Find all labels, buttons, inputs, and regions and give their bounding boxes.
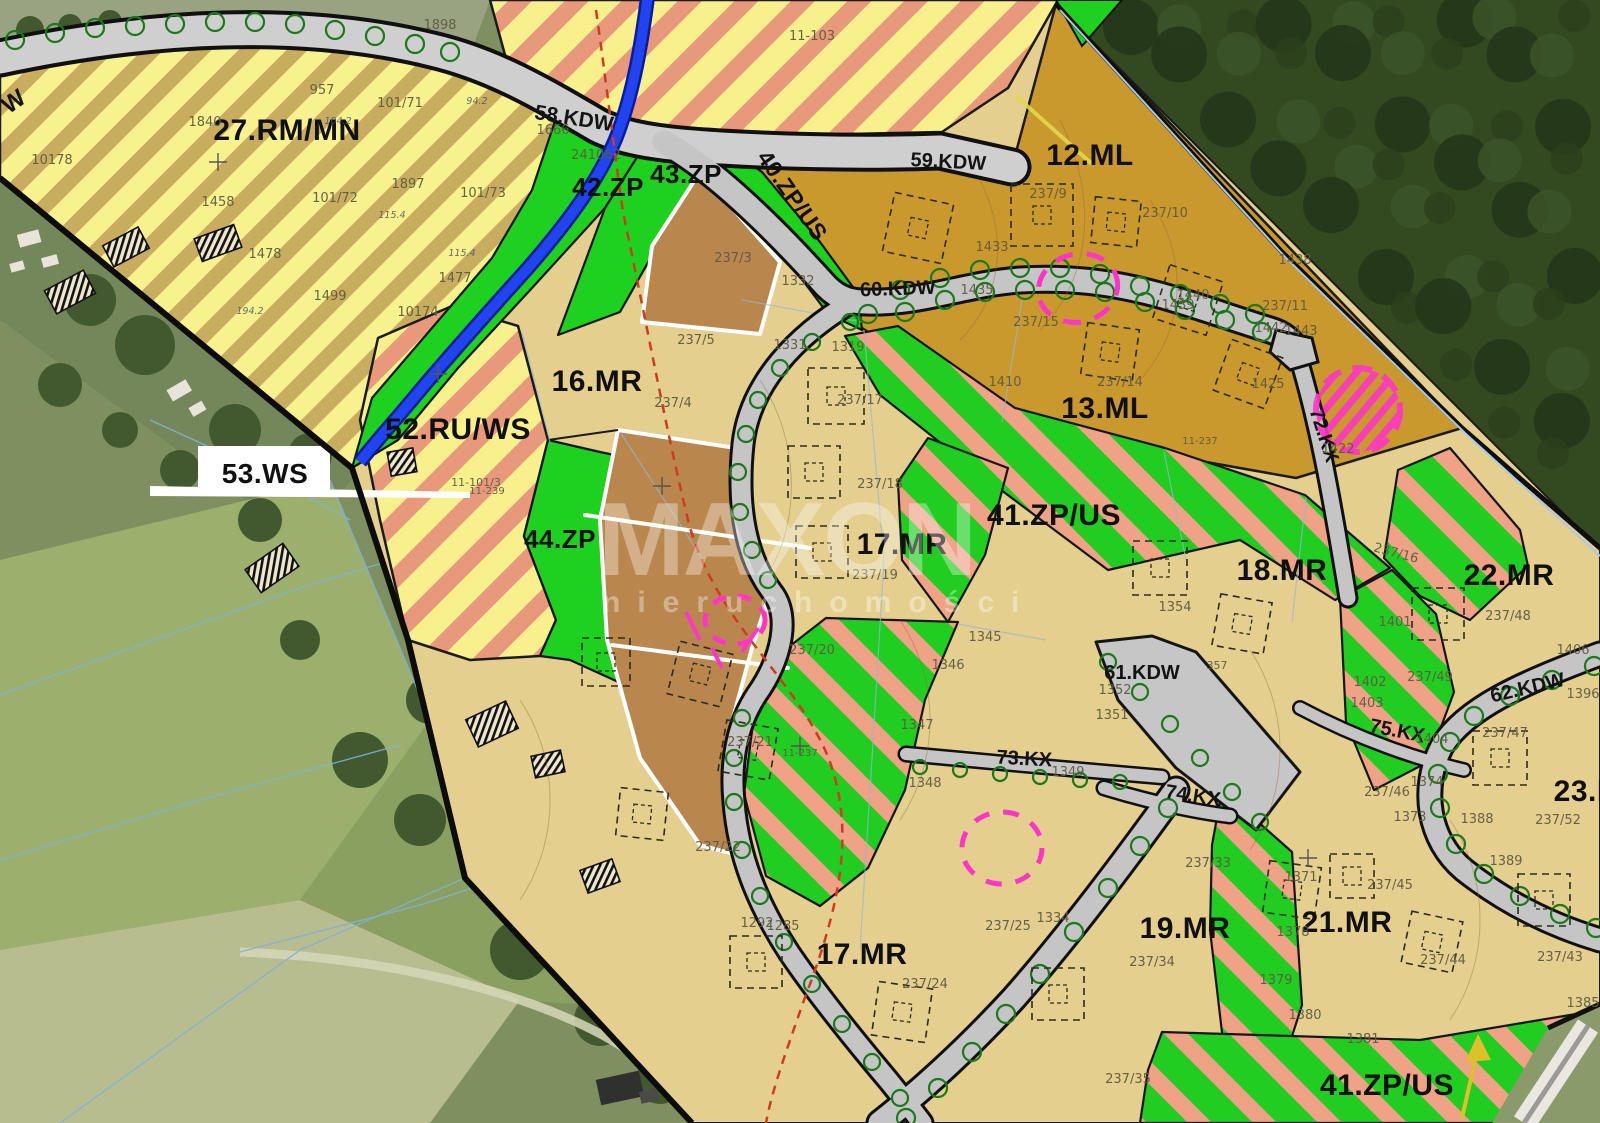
forest-canopy-blob	[1200, 92, 1256, 148]
pl-1346: 1346	[931, 658, 964, 673]
pl-1401: 1401	[1378, 615, 1411, 630]
pl-237-18: 237/18	[857, 477, 903, 492]
pl-10178: 10178	[31, 153, 72, 168]
pl-1378: 1378	[1276, 925, 1309, 940]
forest-canopy-blob	[1530, 34, 1574, 78]
forest-canopy-blob	[1488, 407, 1520, 439]
pl-1402: 1402	[1353, 675, 1386, 690]
road-59-kdw: 59.KDW	[910, 149, 987, 175]
pl-237-43: 237/43	[1537, 950, 1583, 965]
pl-1285: 1285	[766, 919, 799, 934]
pl-1374: 1374	[1410, 775, 1443, 790]
pl-1897: 1897	[391, 177, 424, 192]
pl-101-72: 101/72	[312, 191, 358, 206]
pl-1840: 1840	[188, 115, 221, 130]
pl-237-3: 237/3	[714, 251, 751, 266]
pl-237-44: 237/44	[1420, 953, 1466, 968]
forest-canopy-blob	[1477, 261, 1509, 293]
zone-13-ml: 13.ML	[1061, 392, 1149, 425]
pl-1396: 1396	[1566, 687, 1599, 702]
pl-1666: 1666	[536, 123, 569, 138]
pl-237-9: 237/9	[1029, 187, 1066, 202]
pl-1425: 1425	[1251, 377, 1284, 392]
pl-1499: 1499	[313, 289, 346, 304]
pl-957: 957	[310, 83, 335, 98]
pl-11-239: 11-239	[469, 486, 504, 497]
pl-1403: 1403	[1350, 696, 1383, 711]
forest-canopy-blob	[1381, 31, 1425, 75]
pl-237-4: 237/4	[654, 396, 691, 411]
forest-canopy-blob	[1151, 27, 1207, 83]
road-60-kdw: 60.KDW	[860, 277, 936, 302]
zone-42-zp: 42.ZP	[572, 172, 644, 202]
pl-1458: 1458	[201, 195, 234, 210]
pl-1348: 1348	[908, 776, 941, 791]
pl-1351: 1351	[1095, 708, 1128, 723]
pl-1345: 1345	[968, 630, 1001, 645]
pl-237-21: 237/21	[727, 735, 773, 750]
pl-1442: 1442	[1254, 321, 1287, 336]
zone-43-zp: 43.ZP	[650, 159, 722, 189]
pl-101-73: 101/73	[460, 186, 506, 201]
zone-41-zp-us-2: 41.ZP/US	[1320, 1069, 1454, 1102]
pl-1438: 1438	[1278, 253, 1311, 268]
pl-1439: 1439	[1161, 298, 1194, 313]
forest-canopy-blob	[1375, 96, 1431, 152]
pl-1422: 1422	[1321, 442, 1354, 457]
zone-52-ru-ws: 52.RU/WS	[385, 413, 531, 446]
road-73-kx: 73.KX	[996, 747, 1053, 772]
ml-115-4: 115.4	[448, 248, 475, 259]
pl-1388: 1388	[1460, 812, 1493, 827]
forest-canopy-blob	[1415, 278, 1471, 334]
pl-237-34: 237/34	[1129, 955, 1175, 970]
pl-1331: 1331	[773, 338, 806, 353]
pl-1443: 1443	[1284, 324, 1317, 339]
pl-1389: 1389	[1489, 854, 1522, 869]
road-61-kdw: 61.KDW	[1104, 662, 1180, 684]
pl-1477: 1477	[438, 271, 471, 286]
forest-canopy-blob	[1424, 192, 1456, 224]
pl-237-15: 237/15	[1013, 315, 1059, 330]
map-canvas: 27.RM/MN12.ML13.ML16.MR17.MR17.MR18.MR19…	[0, 0, 1600, 1123]
ml-115-4: 115.4	[378, 210, 405, 221]
pl-237-46: 237/46	[1364, 785, 1410, 800]
zone-19-mr: 19.MR	[1140, 912, 1231, 945]
forest-canopy-blob	[1217, 32, 1261, 76]
zone-18-mr: 18.MR	[1237, 554, 1328, 587]
forest-canopy-blob	[1315, 25, 1371, 81]
pl-237-49: 237/49	[1407, 670, 1453, 685]
ml-94-2: 94.2	[466, 96, 487, 107]
pl-237-19: 237/19	[852, 568, 898, 583]
pl-1352: 1352	[1098, 683, 1131, 698]
pl-1319: 1319	[831, 340, 864, 355]
zone-21-mr: 21.MR	[1302, 906, 1393, 939]
pl-237-20: 237/20	[789, 643, 835, 658]
pl-1332: 1332	[781, 274, 814, 289]
pl-1349: 1349	[1051, 765, 1084, 780]
forest-canopy-blob	[1546, 347, 1590, 391]
pl-237-24: 237/24	[902, 977, 948, 992]
pl-237-35: 237/35	[1105, 1072, 1151, 1087]
pl-1379: 1379	[1259, 973, 1292, 988]
zone-41-zp-us: 41.ZP/US	[987, 499, 1121, 532]
pl-237-22: 237/22	[695, 840, 741, 855]
pl-10174: 10174	[397, 305, 438, 320]
farm-building-symbol	[387, 448, 417, 476]
ml-194-2: 194.2	[236, 306, 263, 317]
pl-1435: 1435	[960, 283, 993, 298]
pl-237-47: 237/47	[1482, 726, 1528, 741]
pl-237-25: 237/25	[985, 919, 1031, 934]
pl-11-237: 11-237	[1182, 436, 1217, 447]
forest-canopy-blob	[1474, 339, 1530, 395]
pl-237-33: 237/33	[1185, 856, 1231, 871]
zone-22-mr: 22.MR	[1464, 559, 1555, 592]
forest-canopy-blob	[1478, 139, 1522, 183]
forest-canopy-blob	[1323, 107, 1355, 139]
forest-canopy-blob	[1491, 110, 1523, 142]
zoning-map: 27.RM/MN12.ML13.ML16.MR17.MR17.MR18.MR19…	[0, 0, 1600, 1123]
forest-canopy-blob	[1303, 177, 1359, 233]
pl-1404: 1404	[1415, 732, 1448, 747]
forest-canopy-blob	[1537, 437, 1569, 469]
forest-canopy-blob	[1527, 190, 1571, 234]
pl-1406: 1406	[1556, 643, 1589, 658]
pl-237-11: 237/11	[1262, 299, 1308, 314]
forest-canopy-blob	[1275, 37, 1307, 69]
forest-canopy-blob	[1533, 288, 1565, 320]
pl-237-45: 237/45	[1367, 878, 1413, 893]
forest-canopy-blob	[1373, 148, 1405, 180]
pl-1334: 1334	[1036, 911, 1069, 926]
zone-44-zp: 44.ZP	[524, 524, 596, 554]
pl-237-10: 237/10	[1142, 206, 1188, 221]
ml-104-2: 104.2	[324, 116, 351, 127]
pl-1478: 1478	[248, 247, 281, 262]
pl-1347: 1347	[900, 718, 933, 733]
forest-canopy-blob	[1558, 0, 1590, 32]
pl-1898: 1898	[423, 18, 456, 33]
pl-1354: 1354	[1158, 600, 1191, 615]
forest-canopy-blob	[1431, 38, 1463, 70]
pl-1381: 1381	[1346, 1032, 1379, 1047]
zone-17-mr: 17.MR	[857, 528, 948, 561]
zone-12-ml: 12.ML	[1046, 139, 1134, 172]
pl-237-5: 237/5	[677, 333, 714, 348]
forest-canopy-blob	[1250, 140, 1306, 196]
forest-canopy-blob	[1551, 143, 1583, 175]
pl-1373: 1373	[1393, 810, 1426, 825]
pl-237-17: 237/17	[837, 393, 883, 408]
pl-1371: 1371	[1284, 870, 1317, 885]
zone-53-ws: 53.WS	[222, 458, 309, 489]
forest-canopy-blob	[1440, 349, 1472, 381]
zone-16-mr: 16.MR	[552, 365, 643, 398]
pl-237-48: 237/48	[1485, 609, 1531, 624]
pl-101-71: 101/71	[377, 96, 423, 111]
pl-11-103: 11-103	[789, 29, 835, 44]
pl-357: 357	[1207, 659, 1228, 672]
pl-1385: 1385	[1566, 996, 1599, 1011]
pl-1380: 1380	[1288, 1008, 1321, 1023]
pl-241062: 241062	[571, 148, 621, 163]
zone-17-mr-2: 17.MR	[817, 938, 908, 971]
pl-1433: 1433	[975, 240, 1008, 255]
pl-11-237: 11-237	[782, 748, 817, 759]
pl-237-14: 237/14	[1097, 375, 1143, 390]
pl-1410: 1410	[988, 375, 1021, 390]
zone-23-m: 23.M	[1554, 775, 1600, 808]
pl-237-52: 237/52	[1535, 813, 1581, 828]
forest-canopy-blob	[1276, 99, 1320, 143]
